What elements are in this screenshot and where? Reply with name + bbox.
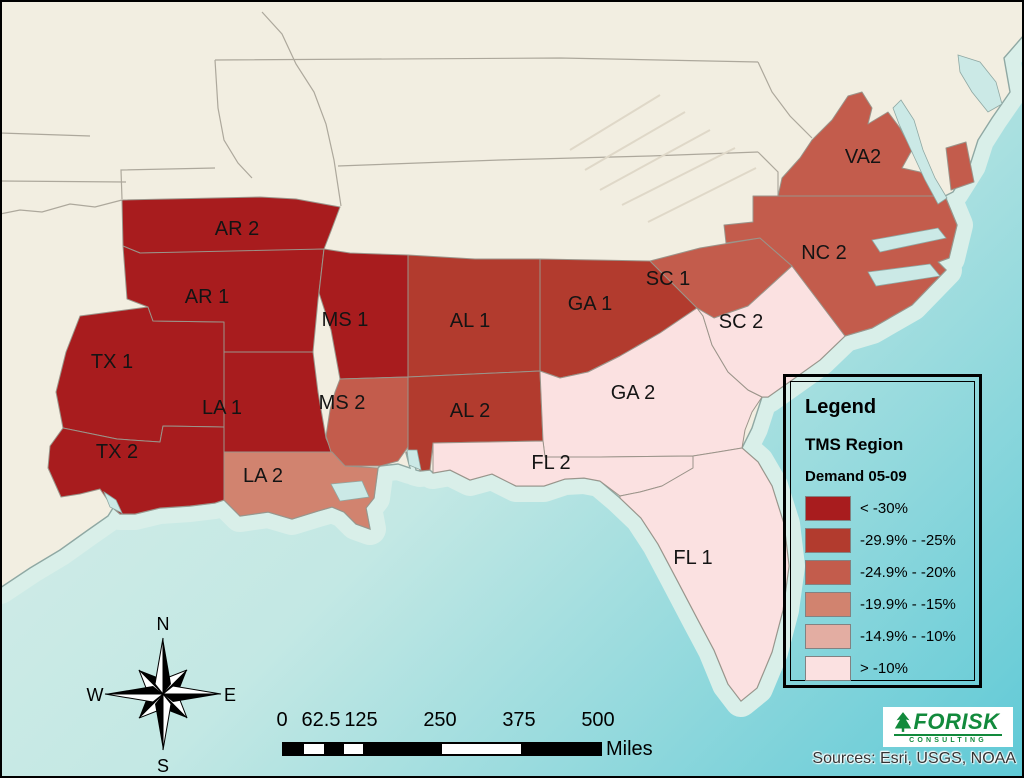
- legend-swatch: [805, 496, 851, 521]
- forisk-brand-text: FORISK: [913, 712, 999, 732]
- legend-swatch: [805, 624, 851, 649]
- forisk-logo: FORISK CONSULTING: [883, 707, 1013, 747]
- scale-tick: 375: [502, 709, 535, 732]
- region-label-al1: AL 1: [450, 310, 490, 332]
- region-label-nc2: NC 2: [801, 242, 847, 264]
- compass-south-label: S: [157, 756, 169, 776]
- region-label-fl2: FL 2: [531, 452, 570, 474]
- region-label-fl1: FL 1: [673, 547, 712, 569]
- region-tx1: [56, 307, 224, 442]
- legend-field-name: Demand 05-09: [805, 468, 974, 485]
- legend-class-label: > -10%: [860, 660, 908, 677]
- legend-row: -29.9% - -25%: [805, 527, 974, 553]
- legend-swatch: [805, 528, 851, 553]
- region-label-ga1: GA 1: [568, 293, 612, 315]
- region-label-va2: VA2: [845, 146, 881, 168]
- region-label-ar2: AR 2: [215, 218, 259, 240]
- scale-tick: 0: [276, 709, 287, 732]
- forisk-tagline: CONSULTING: [909, 737, 987, 744]
- region-label-ms1: MS 1: [322, 309, 369, 331]
- region-label-tx1: TX 1: [91, 351, 133, 373]
- map-credits: Sources: Esri, USGS, NOAA: [696, 750, 1016, 768]
- legend-class-label: -24.9% - -20%: [860, 564, 956, 581]
- legend-title: Legend: [805, 396, 974, 419]
- legend-class-label: -19.9% - -15%: [860, 596, 956, 613]
- region-label-la1: LA 1: [202, 397, 242, 419]
- region-label-tx2: TX 2: [96, 441, 138, 463]
- legend: Legend TMS Region Demand 05-09 < -30% -2…: [783, 374, 982, 688]
- pine-tree-icon: [894, 711, 912, 733]
- region-label-sc2: SC 2: [719, 311, 763, 333]
- legend-class-label: -29.9% - -25%: [860, 532, 956, 549]
- legend-row: -14.9% - -10%: [805, 623, 974, 649]
- scale-tick: 250: [423, 709, 456, 732]
- map-layout: AR 2 AR 1 TX 1 TX 2 LA 1 MS 1 MS 2 LA 2 …: [0, 0, 1024, 778]
- region-label-la2: LA 2: [243, 465, 283, 487]
- scale-bar-segments: [282, 742, 602, 756]
- legend-classes: < -30% -29.9% - -25% -24.9% - -20% -19.9…: [805, 495, 974, 681]
- region-label-ms2: MS 2: [319, 392, 366, 414]
- legend-swatch: [805, 656, 851, 681]
- legend-class-label: < -30%: [860, 500, 908, 517]
- region-label-ar1: AR 1: [185, 286, 229, 308]
- scale-bar: 0 62.5 125 250 375 500 Miles: [270, 705, 670, 765]
- compass-west-label: W: [87, 685, 104, 705]
- legend-row: -19.9% - -15%: [805, 591, 974, 617]
- legend-row: -24.9% - -20%: [805, 559, 974, 585]
- legend-row: > -10%: [805, 655, 974, 681]
- compass-east-label: E: [224, 685, 236, 705]
- region-label-al2: AL 2: [450, 400, 490, 422]
- legend-layer-name: TMS Region: [805, 435, 974, 455]
- compass-north-label: N: [157, 614, 170, 634]
- region-label-ga2: GA 2: [611, 382, 655, 404]
- scale-unit-label: Miles: [606, 738, 653, 761]
- region-label-sc1: SC 1: [646, 268, 690, 290]
- scale-tick: 500: [581, 709, 614, 732]
- scale-tick: 125: [344, 709, 377, 732]
- legend-class-label: -14.9% - -10%: [860, 628, 956, 645]
- legend-swatch: [805, 560, 851, 585]
- region-ms2: [326, 377, 408, 466]
- legend-swatch: [805, 592, 851, 617]
- forisk-brand: FORISK: [894, 711, 1001, 736]
- legend-inner-frame: Legend TMS Region Demand 05-09 < -30% -2…: [790, 381, 975, 681]
- scale-tick: 62.5: [302, 709, 341, 732]
- legend-row: < -30%: [805, 495, 974, 521]
